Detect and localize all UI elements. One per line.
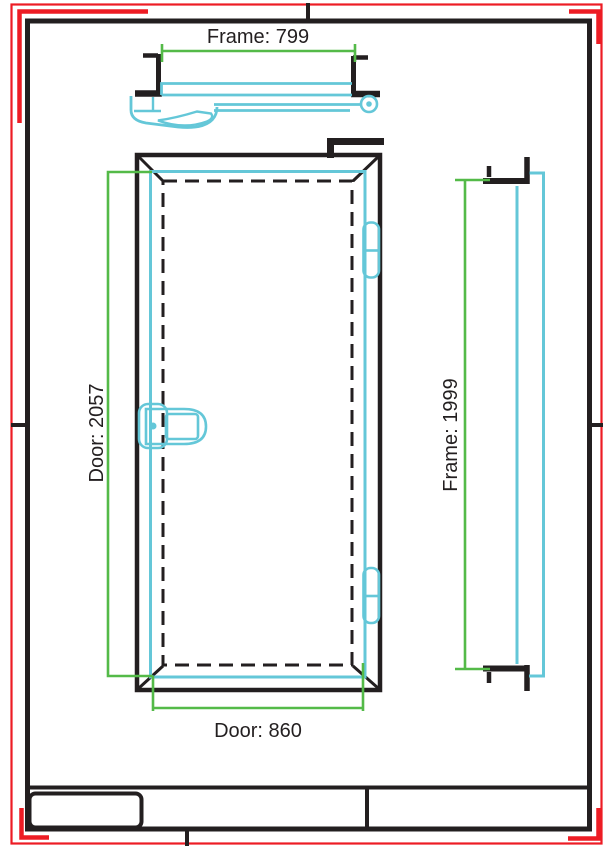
left-jamb-profile (135, 54, 162, 94)
drawing-canvas: Frame: 799 Door: 2057 (0, 0, 614, 852)
sill-profile (131, 96, 217, 128)
title-block-cell-1 (30, 794, 142, 828)
handle-lever-inner (166, 414, 198, 439)
section-frame-lines (517, 173, 544, 676)
door-leaf-plan (162, 84, 353, 96)
title-block (27, 788, 589, 830)
dimension-frame-width: Frame: 799 (162, 26, 355, 62)
side-section-view: Frame: 1999 (440, 157, 544, 691)
crop-mark-top-left (20, 12, 149, 124)
door-leaf-outline (151, 172, 366, 678)
threshold-lines (214, 105, 360, 111)
hinge-knuckle-plan (361, 96, 377, 112)
door-height-label: Door: 2057 (86, 384, 108, 483)
crop-mark-bottom-right (568, 808, 599, 839)
frame-opening-hidden-line (163, 181, 352, 665)
frame-outline (137, 155, 380, 690)
door-elevation-view: Door: 2057 Door: 860 (86, 142, 384, 743)
frame-width-label: Frame: 799 (207, 26, 309, 48)
dimension-door-height: Door: 2057 (86, 172, 153, 676)
frame-miter-diagonals (139, 157, 378, 688)
handle-spindle-dot (150, 423, 157, 430)
frame-height-label: Frame: 1999 (440, 378, 462, 491)
crop-mark-top-right (569, 12, 599, 45)
plan-section-view: Frame: 799 (131, 26, 380, 128)
dimension-door-width: Door: 860 (153, 663, 363, 742)
dimension-frame-height: Frame: 1999 (440, 180, 490, 669)
door-width-label: Door: 860 (214, 720, 302, 742)
drawing-sheet: Frame: 799 Door: 2057 (0, 0, 614, 852)
